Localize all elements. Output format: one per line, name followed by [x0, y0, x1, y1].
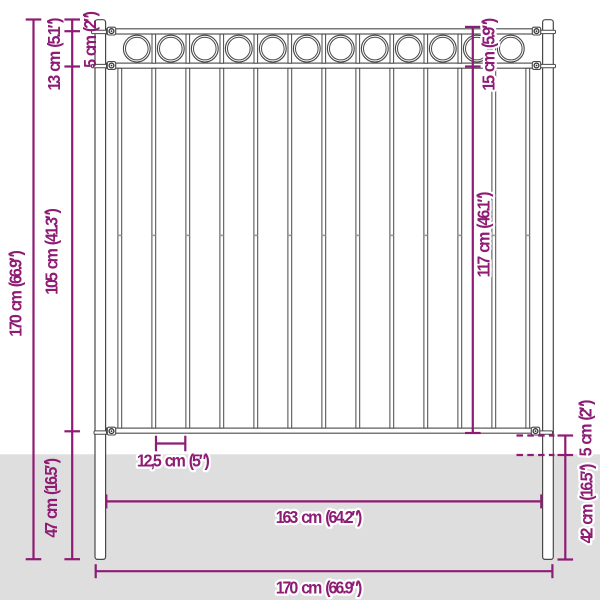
svg-text:5 cm (2″): 5 cm (2″)	[576, 400, 596, 456]
svg-text:12,5 cm (5″): 12,5 cm (5″)	[137, 451, 209, 471]
svg-text:5 cm (2″): 5 cm (2″)	[80, 12, 100, 68]
svg-text:163 cm (64.2″): 163 cm (64.2″)	[276, 508, 362, 528]
svg-text:117 cm (46.1″): 117 cm (46.1″)	[474, 192, 494, 277]
svg-text:105 cm (41.3″): 105 cm (41.3″)	[42, 209, 62, 295]
svg-text:13 cm (5.1″): 13 cm (5.1″)	[45, 18, 65, 90]
svg-text:15 cm (5.9″): 15 cm (5.9″)	[479, 18, 499, 90]
svg-text:42 cm (16.5″): 42 cm (16.5″)	[577, 464, 597, 543]
svg-text:170 cm (66.9″): 170 cm (66.9″)	[6, 251, 26, 337]
svg-text:170 cm (66.9″): 170 cm (66.9″)	[276, 578, 362, 598]
svg-text:47 cm (16.5″): 47 cm (16.5″)	[42, 458, 62, 537]
